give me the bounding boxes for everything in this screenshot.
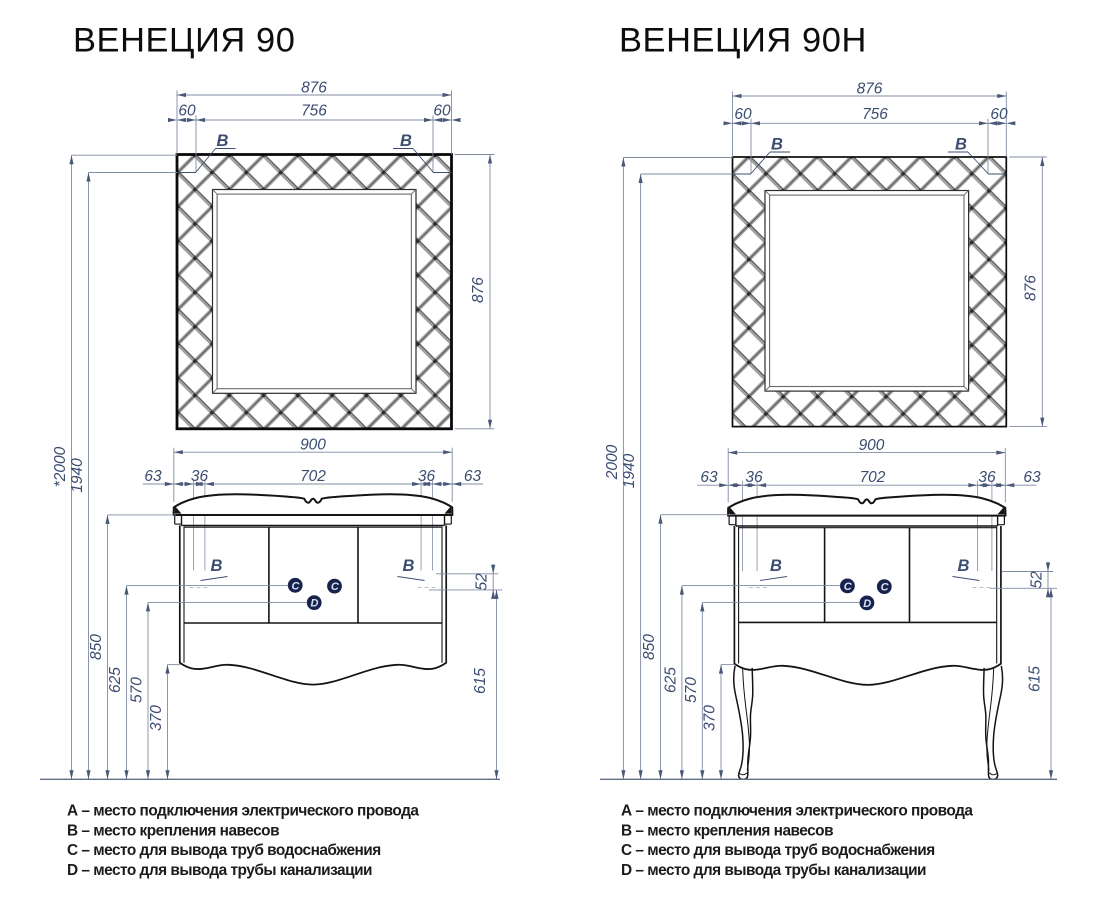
svg-text:370: 370 xyxy=(148,705,165,731)
svg-text:C: C xyxy=(292,580,301,592)
svg-text:63: 63 xyxy=(1023,469,1041,486)
svg-text:36: 36 xyxy=(418,468,436,485)
svg-text:876: 876 xyxy=(857,81,883,98)
svg-text:625: 625 xyxy=(107,667,124,693)
svg-text:B – место крепления навесов: B – место крепления навесов xyxy=(621,822,833,839)
svg-text:52: 52 xyxy=(1029,571,1046,589)
svg-text:63: 63 xyxy=(144,468,162,485)
svg-text:876: 876 xyxy=(470,277,487,303)
svg-text:60: 60 xyxy=(990,106,1008,123)
svg-text:850: 850 xyxy=(641,634,658,660)
svg-text:615: 615 xyxy=(472,668,489,694)
svg-text:702: 702 xyxy=(300,468,326,485)
svg-text:60: 60 xyxy=(734,106,752,123)
svg-text:63: 63 xyxy=(700,469,718,486)
svg-text:63: 63 xyxy=(464,468,482,485)
svg-text:702: 702 xyxy=(860,469,886,486)
svg-text:C – место для вывода труб водо: C – место для вывода труб водоснабжения xyxy=(621,842,935,859)
svg-text:B: B xyxy=(217,132,229,150)
svg-text:*2000: *2000 xyxy=(52,446,69,487)
svg-text:900: 900 xyxy=(859,437,885,454)
svg-text:570: 570 xyxy=(129,677,146,703)
svg-text:36: 36 xyxy=(745,469,763,486)
svg-text:2000: 2000 xyxy=(604,444,621,480)
svg-text:370: 370 xyxy=(702,705,719,731)
svg-text:C: C xyxy=(844,581,853,593)
svg-text:756: 756 xyxy=(862,106,888,123)
svg-text:ВЕНЕЦИЯ 90Н: ВЕНЕЦИЯ 90Н xyxy=(619,22,867,60)
svg-text:B: B xyxy=(955,136,967,154)
svg-text:850: 850 xyxy=(88,634,105,660)
svg-text:D – место для вывода трубы кан: D – место для вывода трубы канализации xyxy=(621,862,926,879)
svg-text:A – место подключения электрич: A – место подключения электрического про… xyxy=(621,803,973,820)
svg-text:900: 900 xyxy=(300,437,326,454)
svg-text:625: 625 xyxy=(662,667,679,693)
svg-text:D: D xyxy=(863,598,871,610)
svg-text:52: 52 xyxy=(474,573,491,591)
svg-text:756: 756 xyxy=(301,103,327,120)
svg-text:B: B xyxy=(400,132,412,150)
svg-text:570: 570 xyxy=(683,677,700,703)
svg-text:B: B xyxy=(771,136,783,154)
svg-text:36: 36 xyxy=(191,468,209,485)
svg-text:C: C xyxy=(881,582,890,594)
svg-text:876: 876 xyxy=(301,80,327,97)
svg-text:B: B xyxy=(958,557,970,575)
svg-text:B: B xyxy=(770,557,782,575)
svg-text:876: 876 xyxy=(1022,275,1039,301)
svg-text:36: 36 xyxy=(978,469,996,486)
svg-text:C: C xyxy=(331,581,340,593)
svg-text:1940: 1940 xyxy=(69,458,86,493)
svg-text:1940: 1940 xyxy=(621,453,638,488)
svg-text:A – место подключения электрич: A – место подключения электрического про… xyxy=(67,803,419,820)
svg-text:D: D xyxy=(311,598,319,610)
svg-text:B: B xyxy=(211,557,223,575)
svg-text:60: 60 xyxy=(433,103,451,120)
svg-text:C – место для вывода труб водо: C – место для вывода труб водоснабжения xyxy=(67,842,381,859)
svg-text:B – место крепления навесов: B – место крепления навесов xyxy=(67,822,279,839)
svg-text:B: B xyxy=(403,557,415,575)
svg-text:60: 60 xyxy=(178,103,196,120)
svg-text:D – место для вывода трубы кан: D – место для вывода трубы канализации xyxy=(67,862,372,879)
svg-text:615: 615 xyxy=(1027,666,1044,692)
svg-text:ВЕНЕЦИЯ 90: ВЕНЕЦИЯ 90 xyxy=(73,22,295,60)
